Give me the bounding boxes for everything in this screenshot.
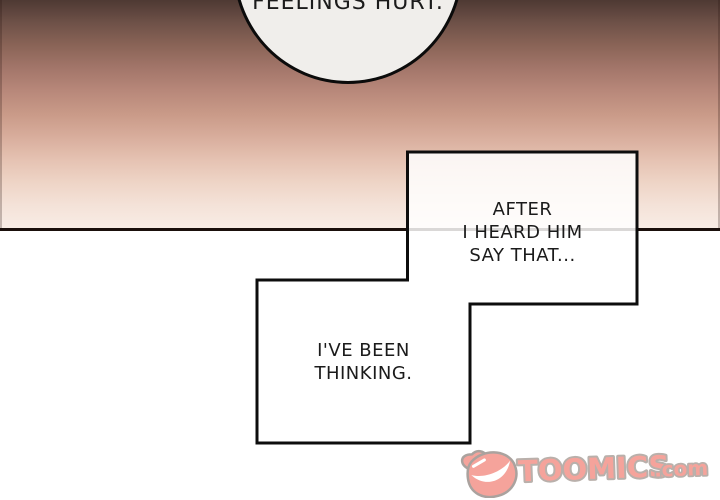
caption-thinking-line-2: THINKING.	[314, 362, 412, 385]
toomics-brand-text: TOOMICS	[517, 449, 670, 488]
comic-page: FEELINGS HURT. AFTER I HEARD HIM SAY THA…	[0, 0, 720, 500]
toomics-tld-text: .com	[654, 456, 709, 482]
caption-thinking-line-1: I'VE BEEN	[317, 339, 410, 362]
caption-box-thinking: I'VE BEEN THINKING.	[257, 280, 470, 443]
toomics-logo-group: TOOMICS .com	[460, 438, 709, 498]
caption-after-line-1: AFTER	[493, 198, 553, 221]
caption-after-line-3: SAY THAT...	[469, 244, 575, 267]
caption-after-line-2: I HEARD HIM	[462, 221, 582, 244]
toomics-grin-face-icon	[461, 444, 521, 498]
toomics-watermark: TOOMICS .com	[456, 438, 718, 498]
